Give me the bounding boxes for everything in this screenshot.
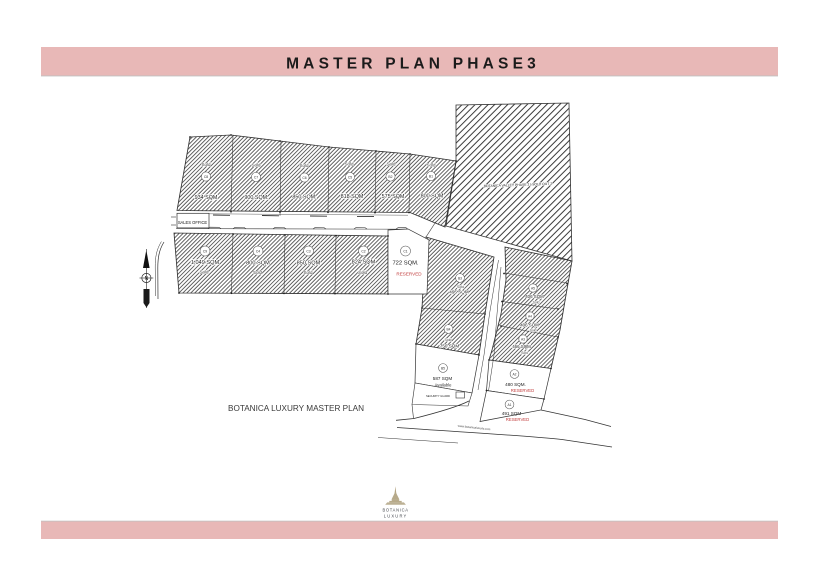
svg-text:491 SQM: 491 SQM — [502, 411, 522, 416]
svg-text:Available: Available — [435, 383, 453, 388]
svg-text:Sold: Sold — [521, 351, 528, 355]
svg-text:A3: A3 — [521, 337, 525, 341]
svg-text:SALES OFFICE: SALES OFFICE — [178, 220, 208, 225]
svg-text:Sold: Sold — [530, 329, 537, 333]
svg-text:722 SQM.: 722 SQM. — [392, 261, 418, 267]
svg-text:LUXURY: LUXURY — [384, 513, 408, 518]
svg-text:B4: B4 — [446, 327, 450, 331]
svg-text:MASTER PLAN PHASE3: MASTER PLAN PHASE3 — [286, 56, 540, 73]
svg-text:Sold: Sold — [533, 301, 540, 305]
svg-text:Sold: Sold — [253, 270, 263, 275]
svg-text:1,049 SQM: 1,049 SQM — [191, 260, 220, 266]
svg-text:www.botanicaluxury.com: www.botanicaluxury.com — [458, 424, 492, 431]
svg-text:Sold: Sold — [444, 338, 451, 342]
svg-text:Sold: Sold — [199, 270, 209, 275]
svg-text:466 SQM: 466 SQM — [512, 344, 531, 349]
svg-text:495 SQM: 495 SQM — [449, 290, 469, 295]
svg-text:850 SQM: 850 SQM — [297, 261, 321, 267]
svg-text:587 SQM: 587 SQM — [433, 376, 453, 381]
svg-text:800 SQM: 800 SQM — [246, 261, 270, 267]
svg-text:406 SQM: 406 SQM — [525, 294, 544, 299]
svg-text:575 SQM: 575 SQM — [382, 194, 405, 200]
svg-text:C9: C9 — [203, 249, 207, 253]
svg-text:800 SQM: 800 SQM — [421, 194, 444, 200]
svg-text:818 SQM: 818 SQM — [341, 194, 364, 200]
svg-text:850 SQM.: 850 SQM. — [292, 195, 316, 201]
svg-text:Sold: Sold — [344, 162, 354, 167]
svg-text:B5: B5 — [441, 366, 445, 370]
svg-text:BOTANICA LUXURY MASTER PLAN: BOTANICA LUXURY MASTER PLAN — [228, 404, 364, 413]
svg-text:RESERVED: RESERVED — [511, 388, 535, 393]
svg-text:934 SQM: 934 SQM — [195, 195, 218, 201]
svg-text:C2: C2 — [361, 249, 365, 253]
svg-text:Sold: Sold — [303, 270, 313, 275]
svg-text:480 SQM.: 480 SQM. — [505, 382, 526, 387]
svg-text:824 SQM: 824 SQM — [352, 260, 376, 266]
svg-text:Sold: Sold — [358, 270, 368, 275]
svg-text:B2: B2 — [388, 175, 392, 179]
svg-text:A5: A5 — [531, 286, 535, 290]
svg-text:RESERVED: RESERVED — [506, 417, 530, 422]
svg-text:A4: A4 — [528, 314, 532, 318]
svg-text:B1: B1 — [429, 174, 433, 178]
svg-text:C5: C5 — [348, 175, 352, 179]
svg-text:BOTANICA: BOTANICA — [382, 508, 408, 513]
svg-text:C8: C8 — [204, 175, 208, 179]
svg-text:C1: C1 — [403, 249, 407, 253]
svg-text:Sold: Sold — [299, 163, 309, 168]
svg-text:C6: C6 — [302, 176, 306, 180]
svg-text:Sold: Sold — [386, 162, 396, 167]
svg-text:406 SQM: 406 SQM — [520, 323, 539, 328]
svg-text:Sold: Sold — [457, 285, 464, 289]
svg-text:C4: C4 — [256, 249, 260, 253]
svg-text:A1: A1 — [507, 403, 511, 407]
svg-text:C3: C3 — [306, 249, 310, 253]
svg-text:B3: B3 — [458, 276, 462, 280]
svg-text:900 SQM.: 900 SQM. — [244, 195, 268, 201]
svg-text:RESERVED: RESERVED — [396, 272, 422, 277]
svg-text:Sold: Sold — [251, 163, 261, 168]
svg-text:Sold: Sold — [201, 162, 211, 167]
svg-text:C7: C7 — [254, 175, 258, 179]
svg-text:A2: A2 — [512, 372, 516, 376]
svg-text:750 SQM: 750 SQM — [440, 344, 460, 349]
svg-text:SECURITY GUARD: SECURITY GUARD — [426, 394, 450, 398]
svg-text:N: N — [145, 276, 149, 282]
svg-text:Sold: Sold — [426, 163, 436, 168]
